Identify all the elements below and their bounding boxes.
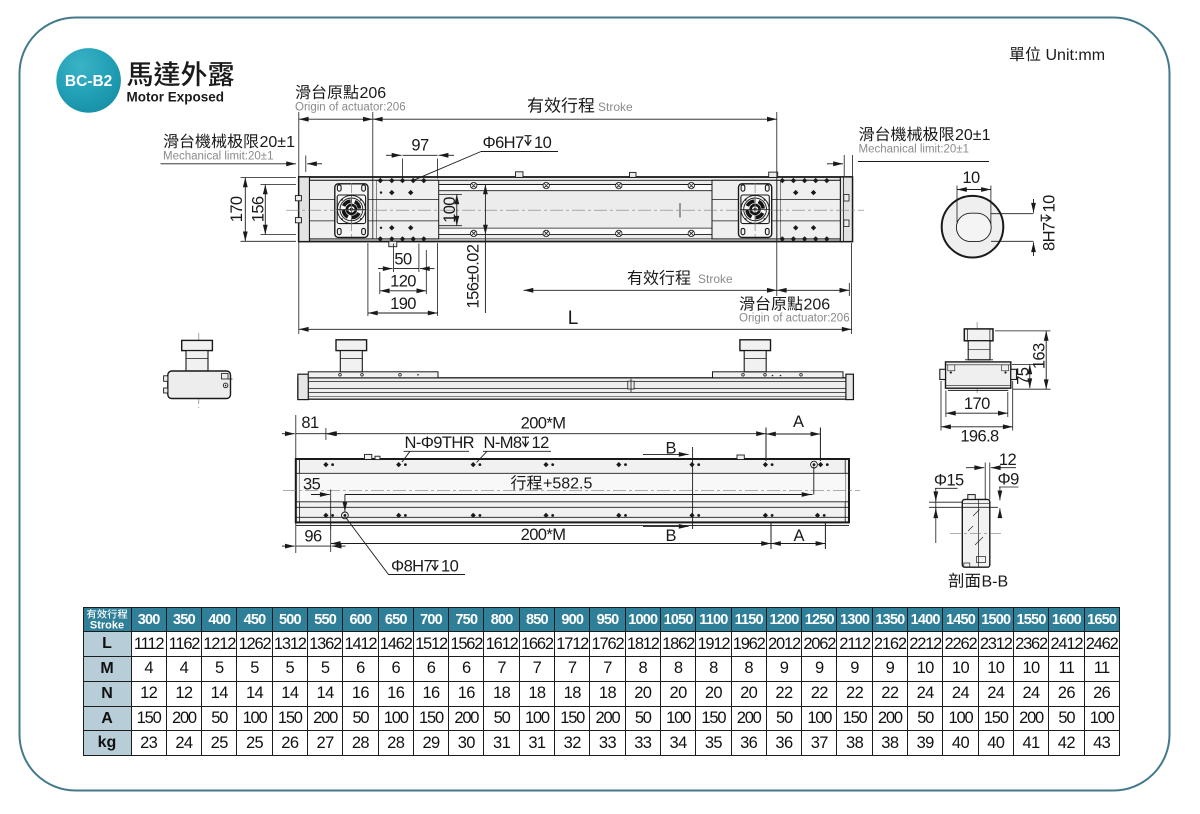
svg-text:B-B: B-B <box>982 574 1009 591</box>
svg-text:156±0.02: 156±0.02 <box>465 244 483 308</box>
svg-text:190: 190 <box>390 295 416 313</box>
svg-text:20±1: 20±1 <box>955 127 991 144</box>
svg-text:Motor Exposed: Motor Exposed <box>127 90 225 105</box>
svg-text:200*M: 200*M <box>521 526 566 544</box>
svg-text:10: 10 <box>441 558 459 576</box>
svg-text:B: B <box>665 440 676 458</box>
svg-text:10: 10 <box>1041 195 1059 213</box>
svg-text:Origin of actuator:206: Origin of actuator:206 <box>295 102 406 114</box>
svg-text:Φ6H7: Φ6H7 <box>483 134 524 152</box>
svg-text:L: L <box>568 308 579 329</box>
svg-text:12: 12 <box>999 451 1017 469</box>
svg-text:N-M8: N-M8 <box>484 434 522 452</box>
svg-text:A: A <box>793 527 804 545</box>
svg-text:B: B <box>665 527 676 545</box>
svg-text:A: A <box>793 413 804 431</box>
svg-text:Mechanical limit:20±1: Mechanical limit:20±1 <box>163 151 274 163</box>
svg-text:Unit:mm: Unit:mm <box>1046 47 1106 64</box>
svg-text:有效行程: 有效行程 <box>627 270 691 288</box>
svg-text:170: 170 <box>964 395 990 413</box>
svg-text:Φ15: Φ15 <box>934 472 964 490</box>
svg-text:97: 97 <box>411 137 429 155</box>
svg-text:12: 12 <box>532 434 550 452</box>
svg-text:120: 120 <box>390 273 416 291</box>
svg-text:Φ9: Φ9 <box>998 471 1020 489</box>
svg-text:156: 156 <box>250 196 268 222</box>
svg-text:+582.5: +582.5 <box>543 476 592 493</box>
svg-text:Origin of actuator:206: Origin of actuator:206 <box>739 313 850 325</box>
svg-text:50: 50 <box>394 251 412 269</box>
svg-text:100: 100 <box>441 197 459 223</box>
svg-text:206: 206 <box>804 297 831 314</box>
svg-text:BC-B2: BC-B2 <box>65 73 112 90</box>
svg-text:Mechanical limit:20±1: Mechanical limit:20±1 <box>859 144 970 156</box>
svg-text:200*M: 200*M <box>521 415 566 433</box>
svg-text:96: 96 <box>304 528 322 546</box>
svg-text:Stroke: Stroke <box>598 100 633 114</box>
svg-text:196.8: 196.8 <box>960 428 999 446</box>
svg-text:35: 35 <box>303 476 321 494</box>
svg-text:81: 81 <box>301 414 319 432</box>
svg-text:Φ8H7: Φ8H7 <box>391 558 432 576</box>
svg-text:10: 10 <box>534 134 552 152</box>
svg-text:206: 206 <box>360 85 387 102</box>
svg-text:20±1: 20±1 <box>260 134 296 151</box>
svg-text:10: 10 <box>962 169 980 187</box>
svg-text:Stroke: Stroke <box>90 620 124 631</box>
svg-text:170: 170 <box>228 196 246 222</box>
svg-text:Stroke: Stroke <box>698 272 733 286</box>
svg-text:8H7: 8H7 <box>1041 222 1059 251</box>
svg-text:163: 163 <box>1030 343 1048 369</box>
svg-text:75: 75 <box>1014 367 1032 385</box>
svg-text:N-Φ9THR: N-Φ9THR <box>405 434 475 452</box>
